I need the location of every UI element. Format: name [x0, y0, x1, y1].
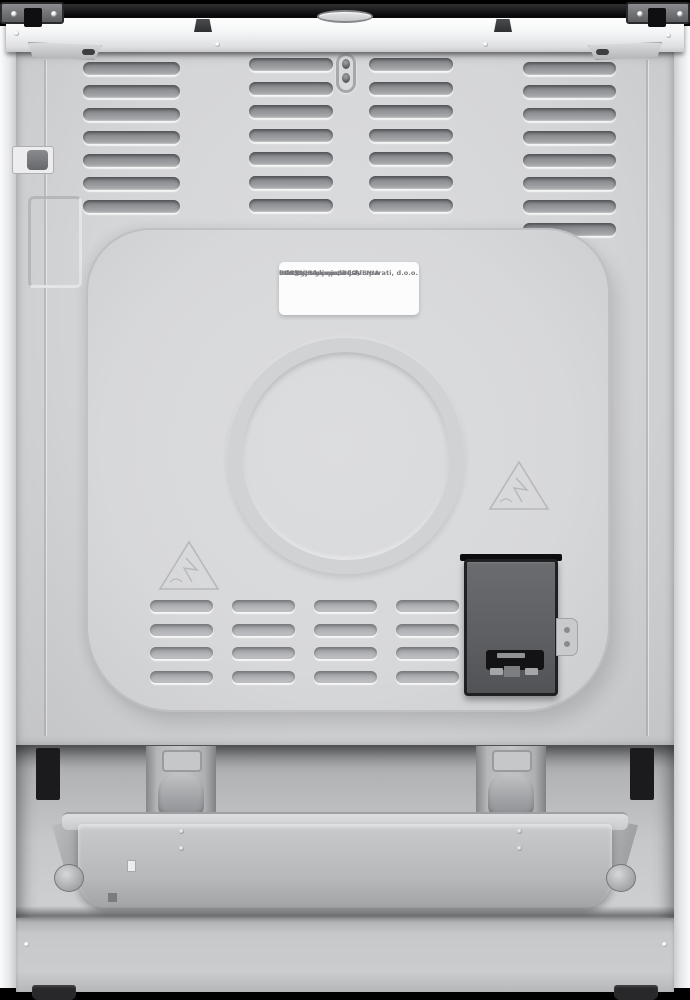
vent-louver — [369, 199, 453, 212]
vent-louver — [523, 131, 616, 144]
screw-icon — [342, 73, 350, 83]
pan-cutout — [127, 860, 136, 872]
screw-icon — [517, 829, 522, 834]
vent-louver — [249, 105, 333, 118]
pan-cutout-dark — [108, 893, 117, 902]
vent-louver — [369, 58, 453, 71]
vent-louver — [150, 671, 213, 683]
bracket-hole — [564, 627, 570, 633]
vent-louver — [232, 671, 295, 683]
screw-icon — [666, 33, 671, 38]
right-side-panel-edge — [673, 26, 690, 988]
panel-groove-right — [646, 60, 648, 736]
bracket-slot — [596, 49, 609, 55]
hinge-notch-left — [24, 8, 42, 27]
vent-louver — [396, 647, 459, 659]
screw-icon — [179, 829, 184, 834]
vent-louver — [83, 85, 180, 98]
screw-icon — [677, 11, 683, 17]
vent-louver — [314, 624, 377, 636]
vent-louver — [249, 82, 333, 95]
vent-louver — [249, 58, 333, 71]
vent-louver — [369, 82, 453, 95]
screw-icon — [51, 11, 57, 17]
clip-lug — [27, 150, 48, 170]
hinge-notch-right — [648, 8, 666, 27]
clamp-spacer — [504, 666, 520, 677]
bracket-slot — [82, 49, 95, 55]
vent-louver — [249, 176, 333, 189]
fan-housing-ring — [228, 338, 464, 574]
cable-clamp-slot — [497, 653, 525, 658]
adjustable-foot-left — [32, 985, 76, 1000]
screw-icon — [662, 942, 667, 947]
bracket-hole — [564, 641, 570, 647]
clamp-tab — [490, 668, 503, 675]
vent-louver — [83, 177, 180, 190]
vent-louver — [369, 129, 453, 142]
screw-icon — [179, 846, 184, 851]
embossed-service-recess — [28, 196, 82, 288]
vent-louver — [369, 152, 453, 165]
vent-louver — [232, 647, 295, 659]
cooker-rear-photo: GORENJE gospodinjski aparati, d.o.o. Par… — [0, 0, 690, 1000]
side-mounting-clip — [12, 146, 54, 174]
rail-cutout — [162, 750, 202, 772]
vent-louver — [396, 624, 459, 636]
vent-louver — [150, 624, 213, 636]
vent-louver — [83, 131, 180, 144]
vent-louver — [369, 176, 453, 189]
compartment-corner-block — [36, 748, 60, 800]
vent-louver — [232, 600, 295, 612]
vent-louver — [150, 600, 213, 612]
vent-louver — [83, 200, 180, 213]
vent-louver — [314, 671, 377, 683]
vent-louver — [523, 200, 616, 213]
screw-icon — [517, 846, 522, 851]
screw-icon — [14, 31, 19, 36]
vent-louver — [83, 108, 180, 121]
vent-louver — [523, 62, 616, 75]
vent-louver — [314, 647, 377, 659]
compartment-corner-block — [630, 748, 654, 800]
rail-cutout — [492, 750, 532, 772]
screw-icon — [215, 42, 220, 47]
vent-louver — [249, 129, 333, 142]
screw-icon — [11, 11, 17, 17]
vent-louver — [523, 108, 616, 121]
storage-drawer-pan — [78, 824, 612, 908]
screw-icon — [637, 11, 643, 17]
vent-louver — [232, 624, 295, 636]
vent-louver — [83, 62, 180, 75]
manufacturer-label: GORENJE gospodinjski aparati, d.o.o. Par… — [279, 262, 419, 315]
warning-triangle-icon — [156, 538, 222, 594]
vent-louver — [396, 600, 459, 612]
terminal-side-bracket — [556, 618, 578, 656]
pan-roller — [54, 864, 84, 892]
vent-louver — [83, 154, 180, 167]
adjustable-foot-right — [614, 985, 658, 1000]
vent-louver — [314, 600, 377, 612]
vent-louver — [150, 647, 213, 659]
vent-louver — [369, 105, 453, 118]
vent-louver — [249, 199, 333, 212]
vent-louver — [523, 177, 616, 190]
clamp-tab — [525, 668, 538, 675]
pan-roller — [606, 864, 636, 892]
screw-icon — [483, 42, 488, 47]
vent-louver — [249, 152, 333, 165]
label-line-email: info@gorenje.com — [279, 269, 347, 279]
stamped-oval-logo — [317, 10, 373, 23]
base-plinth — [16, 918, 674, 992]
warning-triangle-icon — [486, 458, 552, 514]
trim-clip — [194, 19, 212, 32]
rear-top-trim-strip — [6, 18, 684, 52]
vent-louver — [523, 154, 616, 167]
screw-icon — [342, 59, 350, 69]
vent-louver — [396, 671, 459, 683]
mains-terminal-cover — [464, 554, 558, 696]
screw-icon — [24, 942, 29, 947]
vent-louver — [523, 85, 616, 98]
trim-clip — [494, 19, 512, 32]
